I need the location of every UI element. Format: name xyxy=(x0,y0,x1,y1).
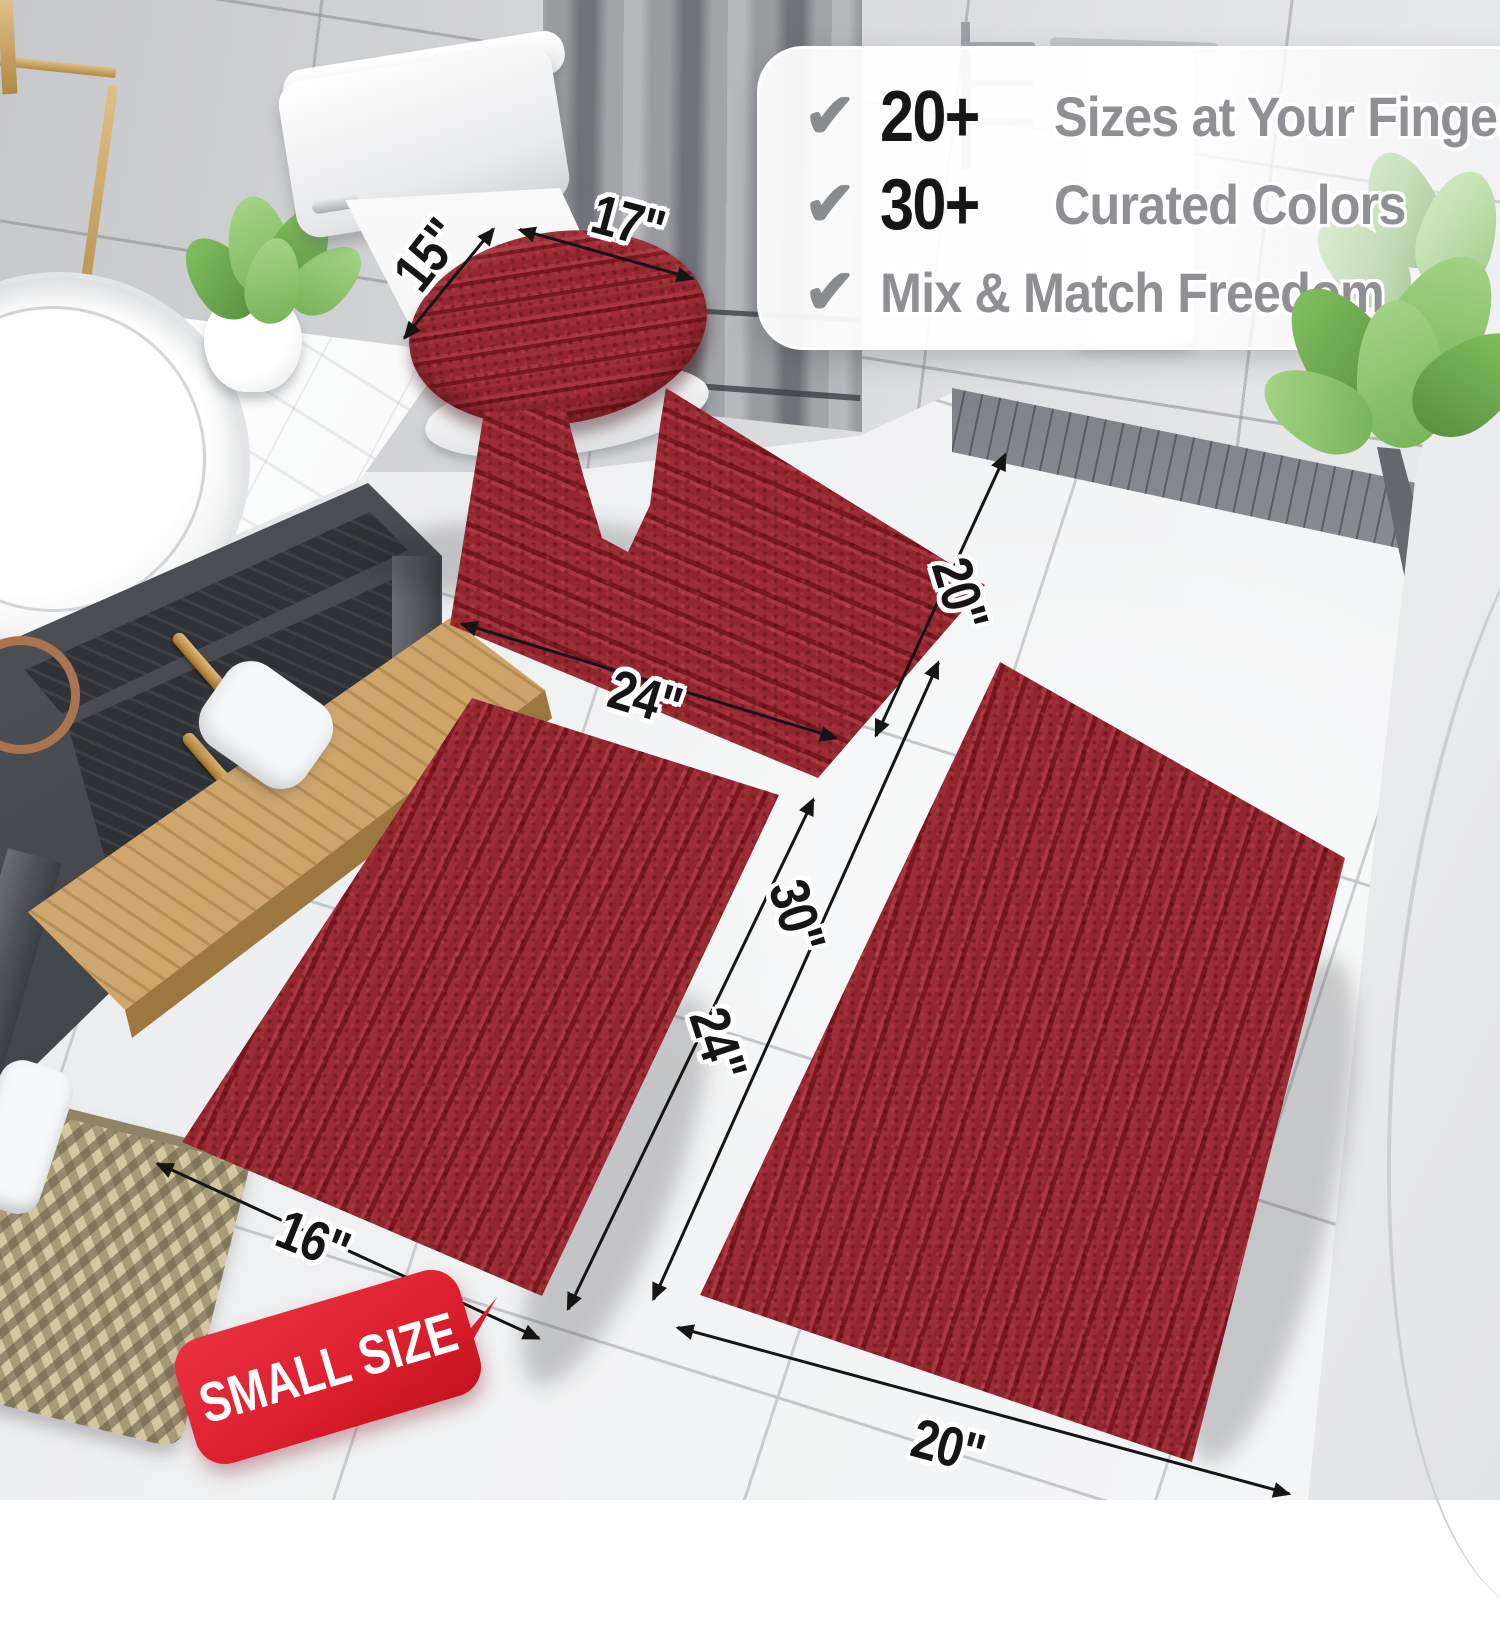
check-icon: ✔ xyxy=(804,86,856,148)
feature-label: Sizes at Your Fingertips xyxy=(1054,89,1500,145)
check-icon: ✔ xyxy=(804,174,856,236)
bathroom-product-scene: ✔ 20+ Sizes at Your Fingertips ✔ 30+ Cur… xyxy=(0,0,1500,1500)
feature-count: 30+ xyxy=(880,169,1008,241)
feature-count: 20+ xyxy=(880,81,1008,153)
feature-label: Curated Colors xyxy=(1054,177,1405,233)
feature-row-sizes: ✔ 20+ Sizes at Your Fingertips xyxy=(804,73,1500,161)
check-icon: ✔ xyxy=(804,262,856,324)
feature-row-colors: ✔ 30+ Curated Colors xyxy=(804,161,1500,249)
